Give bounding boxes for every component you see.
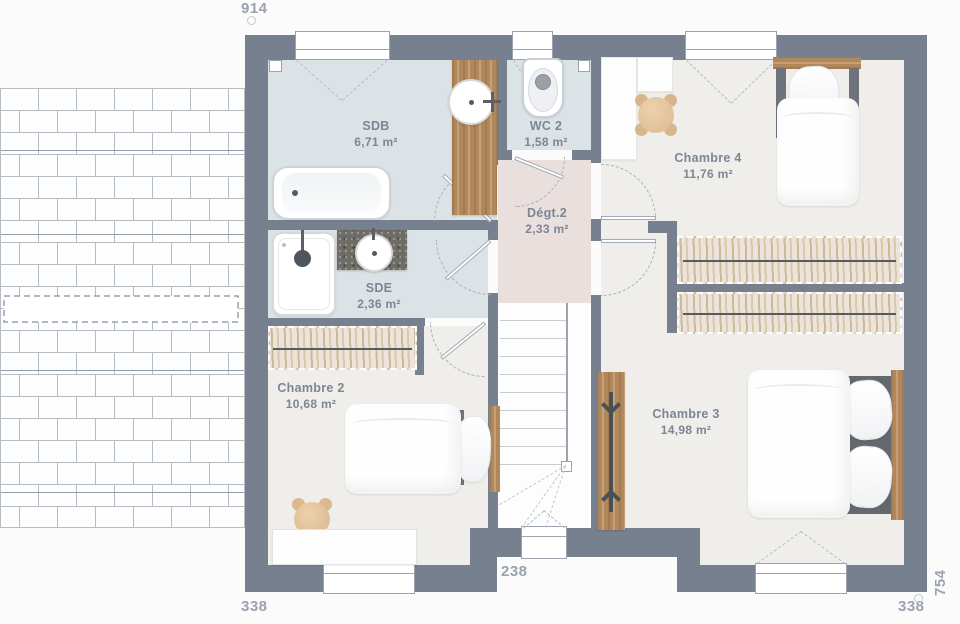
wall-connector — [677, 528, 700, 565]
dimension-right: 754 — [932, 550, 949, 596]
wall-bottom-right-b — [847, 565, 927, 592]
room-name: SDB — [326, 118, 426, 134]
desk — [272, 529, 417, 565]
window-sdb — [295, 31, 390, 60]
wall-bottom-left-a — [245, 565, 323, 592]
window-chambre2 — [323, 563, 415, 594]
bathtub-drain — [292, 190, 298, 196]
room-name: Chambre 3 — [636, 406, 736, 422]
wall-right — [904, 35, 927, 592]
wall-left — [245, 35, 268, 592]
wall-wardrobe-left — [667, 227, 677, 333]
door-leaf-chambre3 — [601, 239, 656, 243]
faucet-icon — [372, 228, 375, 240]
room-area: 6,71 m² — [326, 134, 426, 150]
wall-v3-a — [591, 60, 601, 163]
faucet-icon — [483, 100, 501, 103]
toilet — [522, 58, 564, 118]
window-chambre4 — [685, 31, 777, 60]
shower-head — [294, 250, 311, 267]
room-name: Chambre 2 — [261, 380, 361, 396]
wall-wc-bottom-b — [572, 150, 601, 160]
dimension-bottom-center: 238 — [501, 563, 528, 580]
door-leaf-chambre4 — [601, 216, 656, 220]
headboard — [891, 370, 904, 520]
pouf — [637, 96, 675, 134]
wardrobe-chambre2 — [268, 326, 417, 370]
room-area: 1,58 m² — [506, 134, 586, 150]
room-label-wc2: WC 2 1,58 m² — [506, 118, 586, 150]
closet-chambre4-top — [637, 57, 673, 92]
room-area: 14,98 m² — [636, 422, 736, 438]
wall-sde-chambre2 — [245, 318, 425, 326]
wardrobe-chambre4 — [677, 236, 902, 284]
room-area: 10,68 m² — [261, 396, 361, 412]
room-name: Dégt.2 — [497, 205, 597, 221]
room-label-chambre4: Chambre 4 11,76 m² — [658, 150, 758, 182]
wardrobe-chambre3 — [677, 292, 902, 334]
dimension-bottom-left: 338 — [241, 598, 268, 615]
window-stairs — [521, 526, 567, 559]
floor-staircase — [498, 303, 591, 557]
dimension-marker-icon — [247, 16, 256, 25]
roof-skylight — [4, 296, 238, 322]
wall-chambre3-4 — [667, 283, 904, 292]
room-label-degagement: Dégt.2 2,33 m² — [497, 205, 597, 237]
pilaster-wc — [578, 60, 590, 72]
room-name: Chambre 4 — [658, 150, 758, 166]
window-chambre3 — [755, 563, 847, 594]
wall-bottom-right-a — [677, 565, 755, 592]
room-label-chambre3: Chambre 3 14,98 m² — [636, 406, 736, 438]
room-name: WC 2 — [506, 118, 586, 134]
room-name: SDE — [329, 280, 429, 296]
room-area: 11,76 m² — [658, 166, 758, 182]
room-area: 2,33 m² — [497, 221, 597, 237]
window-wc — [512, 31, 553, 60]
floor-plan: SDB 6,71 m² WC 2 1,58 m² Chambre 4 11,76… — [0, 0, 960, 624]
room-label-chambre2: Chambre 2 10,68 m² — [261, 380, 361, 412]
room-area: 2,36 m² — [329, 296, 429, 312]
dimension-top: 914 — [241, 0, 268, 17]
shower-tray — [272, 232, 336, 316]
wall-stub — [648, 221, 677, 233]
dimension-marker-icon — [914, 594, 923, 603]
bathtub — [272, 166, 391, 220]
room-label-sde: SDE 2,36 m² — [329, 280, 429, 312]
shower-column — [301, 230, 304, 252]
closet-chambre4 — [601, 57, 637, 160]
pilaster-sdb — [269, 60, 282, 72]
roof-tiles — [0, 88, 245, 528]
stair-handrail — [566, 303, 568, 468]
room-label-sdb: SDB 6,71 m² — [326, 118, 426, 150]
